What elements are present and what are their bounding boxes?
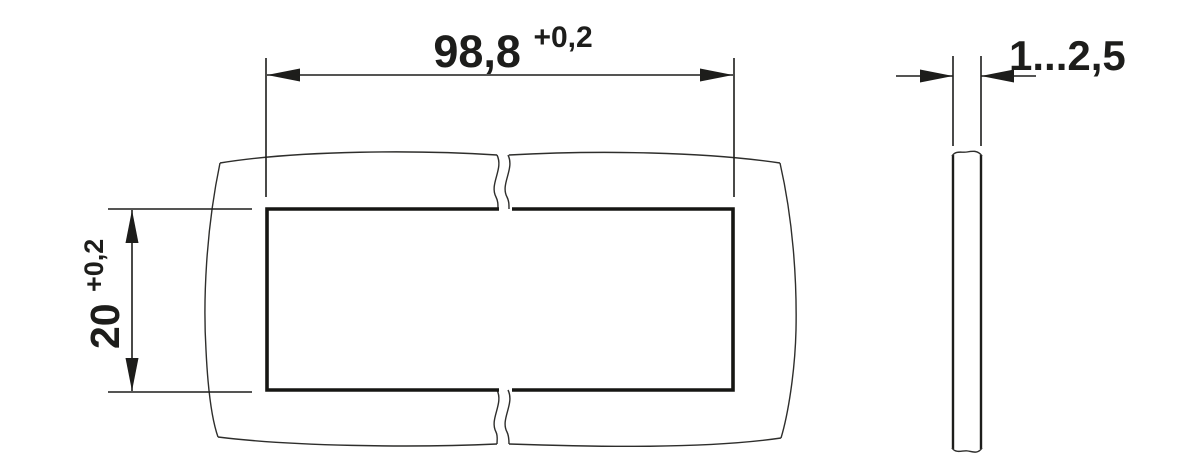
panel-slab [952,151,982,452]
width-dimension: 98,8 +0,2 [266,21,734,197]
panel-outline-right [505,152,796,446]
panel-bottom-edge-right [509,438,781,446]
height-dim-arrow-top-icon [126,210,139,243]
cutout-rectangle [267,209,733,390]
width-dimension-tolerance: +0,2 [533,21,592,54]
panel-cutout-drawing: 98,8 +0,2 20 +0,2 [0,0,1200,469]
cutout-rect-left-half [267,209,499,390]
height-dimension: 20 +0,2 [79,209,252,392]
width-dimension-label: 98,8 +0,2 [433,21,592,77]
height-dimension-tolerance: +0,2 [79,239,109,292]
break-line-top-right [505,155,510,209]
height-dimension-value: 20 [82,303,128,349]
slab-top-cap [952,151,982,156]
width-dimension-value: 98,8 [433,26,521,77]
panel-right-edge [780,163,796,438]
panel-bottom-edge-left [218,437,497,446]
side-view: 1...2,5 [896,32,1126,452]
height-dim-arrow-bottom-icon [126,358,139,391]
break-line-bottom-right [505,390,510,444]
break-line-bottom-left [494,390,499,444]
drawing-canvas: 98,8 +0,2 20 +0,2 [0,0,1200,469]
front-view: 98,8 +0,2 20 +0,2 [79,21,796,446]
thickness-dim-arrow-left-icon [920,70,953,83]
width-dim-arrow-left-icon [267,69,300,82]
panel-left-edge [205,163,220,437]
slab-bottom-cap [952,448,982,452]
panel-top-edge-right [509,152,780,163]
panel-top-edge-left [220,152,497,163]
height-dimension-label: 20 +0,2 [79,239,128,349]
thickness-dimension-label: 1...2,5 [1009,32,1126,79]
panel-outline-left [205,152,499,446]
cutout-rect-right-half [512,209,733,390]
width-dim-arrow-right-icon [700,69,733,82]
break-line-top-left [494,155,499,209]
thickness-dimension: 1...2,5 [896,32,1126,146]
